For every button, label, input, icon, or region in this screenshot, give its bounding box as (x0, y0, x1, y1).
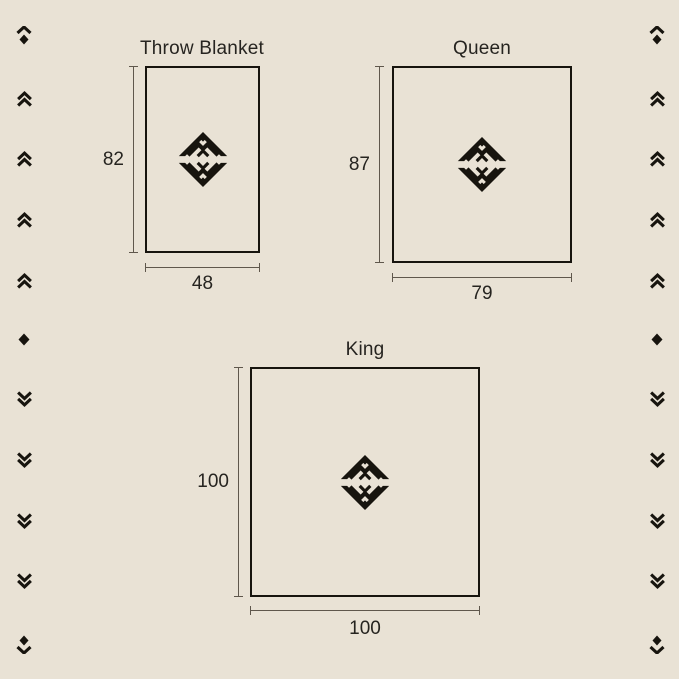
double-chevron-up-icon (649, 212, 666, 229)
height-dimension-line (129, 66, 138, 253)
blanket-outline (145, 66, 260, 253)
height-dimension-label: 100 (178, 367, 229, 597)
diamond-icon (18, 333, 30, 346)
diamond-icon (651, 333, 663, 346)
blanket-size-chart: Throw Blanket 82 48 Queen 87 79 King (0, 0, 679, 679)
chevron-up-diamond-icon (648, 26, 666, 47)
double-chevron-up-icon (16, 91, 33, 108)
double-chevron-up-icon (649, 151, 666, 168)
double-chevron-down-icon (16, 390, 33, 407)
blanket-outline (250, 367, 480, 597)
double-chevron-down-icon (16, 572, 33, 589)
right-decoration-column (646, 26, 668, 654)
width-dimension-line (250, 606, 480, 615)
double-chevron-up-icon (16, 273, 33, 290)
double-chevron-down-icon (16, 512, 33, 529)
brand-motif-icon (336, 452, 394, 513)
double-chevron-down-icon (649, 572, 666, 589)
double-chevron-up-icon (16, 151, 33, 168)
double-chevron-up-icon (649, 91, 666, 108)
diamond-chevron-down-icon (648, 633, 666, 654)
double-chevron-down-icon (649, 451, 666, 468)
blanket-outline (392, 66, 572, 263)
double-chevron-down-icon (16, 451, 33, 468)
left-decoration-column (13, 26, 35, 654)
double-chevron-down-icon (649, 512, 666, 529)
double-chevron-up-icon (16, 212, 33, 229)
size-title: Queen (392, 38, 572, 60)
width-dimension-line (392, 273, 572, 282)
width-dimension-label: 48 (145, 273, 260, 295)
height-dimension-line (234, 367, 243, 597)
height-dimension-label: 87 (328, 66, 370, 263)
brand-motif-icon (174, 129, 232, 190)
width-dimension-label: 100 (250, 618, 480, 640)
width-dimension-line (145, 263, 260, 272)
diamond-chevron-down-icon (15, 633, 33, 654)
double-chevron-down-icon (649, 390, 666, 407)
chevron-up-diamond-icon (15, 26, 33, 47)
brand-motif-icon (453, 134, 511, 195)
height-dimension-line (375, 66, 384, 263)
double-chevron-up-icon (649, 273, 666, 290)
height-dimension-label: 82 (82, 66, 124, 253)
size-title: Throw Blanket (112, 38, 292, 60)
width-dimension-label: 79 (392, 283, 572, 305)
size-title: King (250, 339, 480, 361)
